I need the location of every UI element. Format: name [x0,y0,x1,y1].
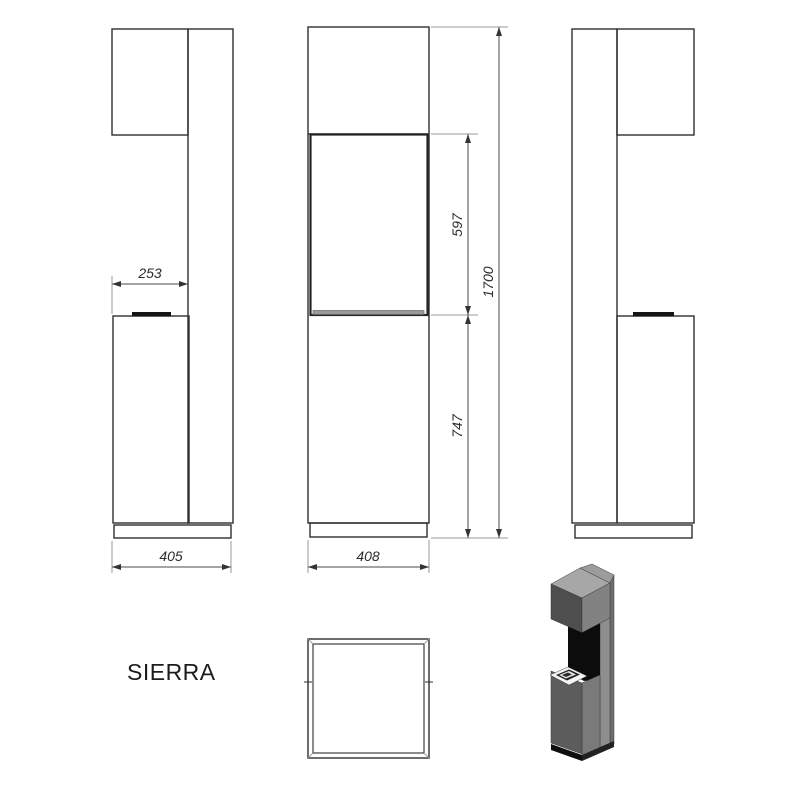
left-view-column-outline [188,29,233,523]
front-view-plinth-outline [310,523,427,537]
render-cabinet-side-face [582,675,600,756]
render-column-front-face [600,618,610,752]
left-view-cabinet-outline [113,316,189,523]
dimension-label-total-depth: 405 [159,548,183,564]
front-view-burner-shelf [313,311,424,315]
front-view-firebox-outline [311,135,428,316]
dimension-total-depth: 405 [112,541,231,573]
technical-drawing-sheet: 253 405 597 [0,0,800,800]
dimension-lower-section-height: 747 [449,315,468,538]
top-view-inner-outline [313,644,424,753]
render-column-side-face [610,575,614,748]
top-view [304,639,433,758]
right-view-column-outline [572,29,617,523]
dimension-firebox-height: 597 [431,134,478,315]
dimension-label-lower-section-height: 747 [449,413,465,438]
left-side-view: 253 405 [112,29,233,573]
dimension-hood-depth: 253 [112,265,188,314]
mitre-line [424,753,429,758]
dimension-total-height: 1700 [431,27,508,538]
left-view-burner-strip [132,312,171,317]
right-view-burner-strip [633,312,674,317]
left-view-plinth-outline [114,525,231,538]
front-view-body-outline [308,27,429,523]
mitre-line [308,639,313,644]
front-view: 597 1700 747 408 [308,27,508,573]
dimension-label-firebox-height: 597 [449,212,465,237]
mitre-line [424,639,429,644]
product-title: SIERRA [127,659,216,686]
dimension-width: 408 [308,540,429,573]
isometric-render [550,564,614,761]
drawing-canvas: 253 405 597 [0,0,800,800]
dimension-label-hood-depth: 253 [137,265,162,281]
dimension-label-total-height: 1700 [480,266,496,297]
dimension-label-width: 408 [356,548,380,564]
top-view-outer-outline [308,639,429,758]
right-view-hood-outline [617,29,694,135]
right-side-view [572,29,694,538]
left-view-hood-outline [112,29,188,135]
right-view-cabinet-outline [617,316,694,523]
right-view-plinth-outline [575,525,692,538]
mitre-line [308,753,313,758]
